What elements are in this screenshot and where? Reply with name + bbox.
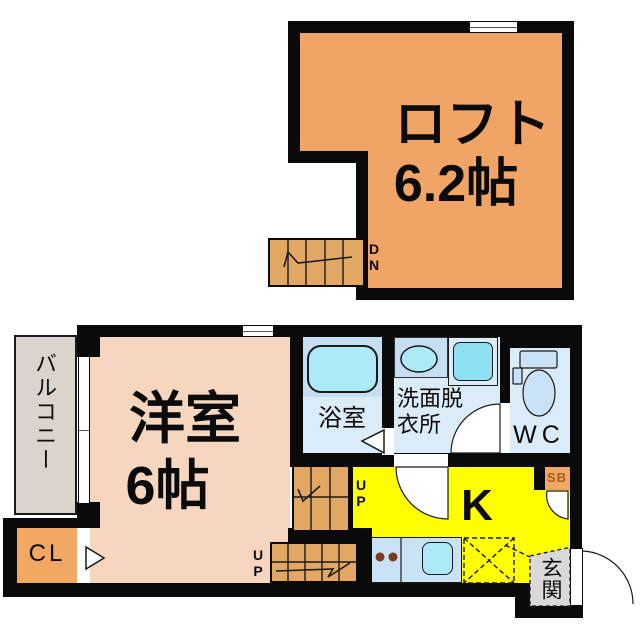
stove-burner-icon [389,553,398,562]
toilet-icon [513,351,557,416]
bathroom-folding-door-icon [362,430,384,453]
washroom-door-swing [396,467,448,519]
shoebox-door-swing [547,491,568,519]
loft-room-label: ロフト [370,98,575,153]
shoebox-label: SB [543,471,571,485]
upper-flight-arrow [298,486,320,501]
loft-stair-treads [288,240,343,285]
kitchen-label: K [445,483,509,529]
basin-icon [401,346,437,372]
stairs-up-kitchen-label: UP [354,477,368,509]
lower-flight-treads [272,544,356,581]
stairs-up-room-label: UP [251,547,265,579]
entrance-door-swing [583,551,633,604]
closet-label: CL [20,541,74,566]
western-room-size: 6帖 [85,458,250,515]
stove-burner-icon [376,553,385,562]
wc-label: WC [506,422,572,448]
bathroom-label: 浴室 [300,406,384,431]
loft-stairs-down-label: DN [367,241,381,273]
western-room-label: 洋室 [85,390,285,449]
entrance-label: 玄関 [539,557,561,605]
balcony-label: バルコニー [33,352,56,508]
loft-room-size: 6.2帖 [346,157,566,212]
floor-plan: ロフト 6.2帖 DN [0,0,640,640]
washroom-label: 洗面脱衣所 [397,386,469,439]
loft-stair-arrow [284,252,352,267]
appliance-space-dashed [464,538,530,583]
closet-folding-door-icon [86,547,104,569]
